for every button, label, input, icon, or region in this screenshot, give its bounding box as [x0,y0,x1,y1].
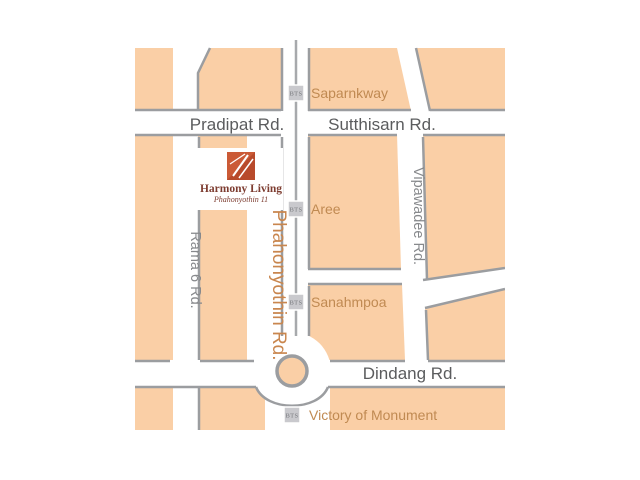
logo-mark-icon [227,152,255,180]
city-block [423,134,505,280]
bts-station-icon: BTS [288,294,304,310]
bts-station-icon: BTS [288,201,304,217]
station-label-saparnkway: Saparnkway [311,85,388,101]
road-label-sutthisarn: Sutthisarn Rd. [328,115,436,134]
bts-marker-label: BTS [289,300,302,307]
city-block [416,48,505,111]
road-label-pradipat: Pradipat Rd. [190,115,285,134]
map-canvas: Harmony Living Phahonyothin 11 BTS Sapar… [135,40,505,440]
location-map: Harmony Living Phahonyothin 11 BTS Sapar… [0,0,640,480]
bts-marker-label: BTS [289,91,302,98]
bts-marker-label: BTS [285,413,298,420]
station-label-sanahmpoa: Sanahmpoa [311,294,387,310]
city-block [135,48,173,111]
city-block [135,388,173,430]
bts-station-icon: BTS [284,407,300,423]
station-label-aree: Aree [311,201,341,217]
road-label-vipawadee: Vipawadee Rd. [410,167,426,265]
bts-station-icon: BTS [288,85,304,101]
station-sanahmpoa: BTS Sanahmpoa [288,294,387,310]
city-block [135,134,173,360]
road-label-phahonyothin: Phahonyothin Rd. [268,209,289,360]
station-saparnkway: BTS Saparnkway [288,85,388,101]
logo-subtitle: Phahonyothin 11 [213,195,268,204]
logo-title: Harmony Living [200,183,282,195]
road-label-dindang: Dindang Rd. [363,364,458,383]
station-victory-monument: BTS Victory of Monument [284,407,437,423]
city-block [198,48,281,111]
road-label-rama6: Rama 6 Rd. [187,231,203,308]
harmony-living-logo: Harmony Living Phahonyothin 11 [194,148,283,210]
city-block [198,388,265,430]
bts-marker-label: BTS [289,207,302,214]
city-block [308,48,411,111]
station-label-victory: Victory of Monument [309,407,437,423]
station-aree: BTS Aree [288,201,341,217]
